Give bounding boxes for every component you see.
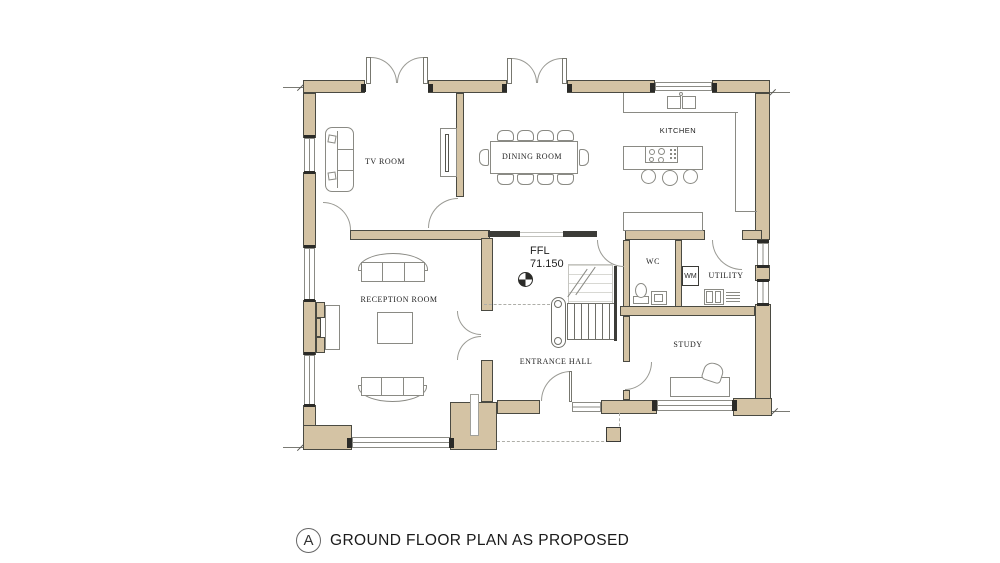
door-jamb	[567, 84, 572, 92]
back-door	[757, 243, 769, 266]
window-jamb	[732, 400, 737, 411]
sofa-back-line	[337, 131, 338, 188]
room-label-utility: UTILITY	[702, 271, 750, 280]
wall	[303, 425, 352, 450]
dining-chair	[579, 149, 589, 166]
door-swing-arc	[323, 202, 351, 230]
door-swing-arc	[537, 58, 562, 83]
hob-burner	[658, 148, 665, 155]
bar-stool	[662, 170, 678, 186]
window-jamb	[757, 265, 769, 268]
floor-level-annotation: FFL 71.150	[530, 245, 564, 271]
dining-chair	[517, 130, 534, 141]
dining-chair	[557, 174, 574, 185]
wall	[601, 400, 657, 414]
sofa-cushion-line	[338, 149, 353, 150]
window-jamb	[304, 245, 315, 248]
wall	[567, 80, 655, 93]
chimney-breast	[316, 318, 321, 337]
wall	[625, 230, 705, 240]
sofa-cushion-line	[381, 378, 382, 395]
sofa-cushion-line	[338, 170, 353, 171]
room-label-tv: TV ROOM	[353, 157, 417, 166]
stair-newel	[554, 300, 562, 308]
wall	[350, 230, 490, 240]
plan-title-text: GROUND FLOOR PLAN AS PROPOSED	[330, 532, 629, 550]
porch-post	[606, 427, 621, 442]
window-jamb	[712, 83, 717, 92]
wall	[456, 93, 464, 197]
window-jamb	[757, 240, 769, 243]
window-jamb	[304, 352, 315, 355]
room-label-wc: WC	[641, 257, 665, 266]
hob-knob	[670, 149, 672, 151]
wash-basin-bowl	[654, 294, 663, 302]
plan-key-circle: A	[296, 528, 321, 553]
window-jamb	[347, 438, 352, 448]
window	[304, 248, 315, 300]
utility-sink-bowl	[715, 291, 721, 303]
kitchen-tap	[679, 92, 683, 96]
wall	[742, 230, 762, 240]
window-jamb	[449, 438, 454, 448]
hob-burner	[649, 157, 654, 162]
door-jamb	[428, 84, 433, 92]
wall	[428, 80, 507, 93]
room-label-kitchen: KITCHEN	[654, 126, 702, 135]
hob-knob	[674, 157, 676, 159]
door-swing-arc	[371, 57, 397, 83]
wall	[497, 400, 540, 414]
window	[304, 355, 315, 405]
floor-plan-drawing: WM TV ROOM DINING ROOM KITCHEN RECEPTION…	[0, 0, 1000, 563]
door-swing-arc	[428, 198, 458, 228]
bar-stool	[641, 169, 656, 184]
window	[304, 138, 315, 172]
dining-chair	[537, 174, 554, 185]
coffee-table	[377, 312, 413, 344]
hob-burner	[658, 157, 664, 163]
wall	[481, 238, 493, 311]
door-swing-arc	[457, 336, 481, 360]
lintel-beam	[563, 231, 597, 237]
toilet-bowl	[635, 283, 647, 298]
kitchen-sink	[667, 96, 681, 109]
window	[655, 82, 712, 91]
room-label-hall: ENTRANCE HALL	[518, 357, 594, 366]
door-leaf	[423, 57, 428, 84]
sofa-pillow	[327, 134, 336, 143]
sofa-cushion-line	[382, 263, 383, 281]
radiator	[470, 394, 479, 436]
dining-chair	[557, 130, 574, 141]
chimney-breast	[316, 337, 325, 353]
sofa-cushion-line	[403, 378, 404, 395]
door-leaf	[562, 58, 567, 84]
wall	[303, 172, 316, 248]
level-marker-icon	[518, 272, 533, 287]
hob-knob	[670, 157, 672, 159]
washing-machine-label: WM	[683, 267, 698, 285]
tv-screen	[445, 134, 449, 172]
wall	[303, 93, 316, 138]
front-door-swing-arc	[541, 371, 571, 401]
hob-burner	[649, 149, 655, 155]
drawing-title: A GROUND FLOOR PLAN AS PROPOSED	[296, 528, 629, 553]
porch-outline-dashed	[497, 441, 619, 442]
sofa-pillow	[327, 171, 336, 180]
fireplace	[325, 305, 340, 350]
bar-stool	[683, 169, 698, 184]
threshold-line	[520, 232, 563, 233]
drainer	[726, 292, 740, 304]
window-jamb	[757, 303, 769, 306]
chimney-breast	[316, 302, 325, 318]
window-jamb	[304, 404, 315, 407]
wall	[481, 360, 493, 402]
sofa-cushion-line	[404, 263, 405, 281]
dining-chair	[497, 174, 514, 185]
hob-knob	[674, 149, 676, 151]
sofa-seat	[361, 377, 424, 396]
wall	[755, 93, 770, 240]
sofa-seat	[361, 262, 425, 282]
stair-treads	[567, 303, 614, 340]
hob-knob	[670, 153, 672, 155]
door-swing-arc	[457, 311, 481, 335]
window-jamb	[650, 83, 655, 92]
window-jamb	[652, 400, 657, 411]
kitchen-counter	[735, 112, 757, 212]
sidelight-window	[572, 402, 601, 412]
stair-wall	[614, 266, 617, 341]
wall	[303, 300, 316, 355]
ceiling-break-dashed-line	[484, 304, 550, 305]
study-door-swing-arc	[625, 362, 652, 390]
room-label-study: STUDY	[666, 340, 710, 349]
dining-chair	[479, 149, 489, 166]
room-label-reception: RECEPTION ROOM	[360, 295, 438, 304]
window-jamb	[304, 135, 315, 138]
wall	[623, 390, 630, 400]
window-jamb	[304, 299, 315, 302]
ffl-value: 71.150	[530, 258, 564, 271]
dining-chair	[497, 130, 514, 141]
dining-chair	[517, 174, 534, 185]
threshold-line	[520, 236, 563, 237]
wall	[303, 80, 365, 93]
room-label-dining: DINING ROOM	[494, 152, 570, 161]
window	[757, 281, 769, 304]
wc-door-swing-arc	[597, 240, 624, 267]
lintel-beam	[488, 231, 520, 237]
utility-sink-bowl	[706, 291, 713, 303]
wall	[675, 240, 682, 310]
kitchen-peninsula	[623, 212, 703, 231]
kitchen-sink	[682, 96, 696, 109]
washing-machine: WM	[682, 266, 699, 286]
wall	[755, 304, 771, 400]
utility-door-swing-arc	[712, 240, 742, 270]
wall	[620, 306, 755, 316]
wall	[712, 80, 770, 93]
window	[352, 437, 450, 448]
window	[657, 400, 733, 411]
wall	[733, 398, 772, 416]
wall	[623, 240, 630, 310]
stair-newel	[554, 337, 562, 345]
door-swing-arc	[512, 58, 537, 83]
hob-knob	[674, 153, 676, 155]
window-jamb	[304, 171, 315, 174]
dining-chair	[537, 130, 554, 141]
ffl-label: FFL	[530, 245, 564, 258]
front-door-leaf	[569, 371, 572, 402]
door-swing-arc	[397, 57, 423, 83]
door-jamb	[361, 84, 366, 92]
window-jamb	[757, 279, 769, 282]
wall	[623, 316, 630, 362]
door-jamb	[502, 84, 507, 92]
